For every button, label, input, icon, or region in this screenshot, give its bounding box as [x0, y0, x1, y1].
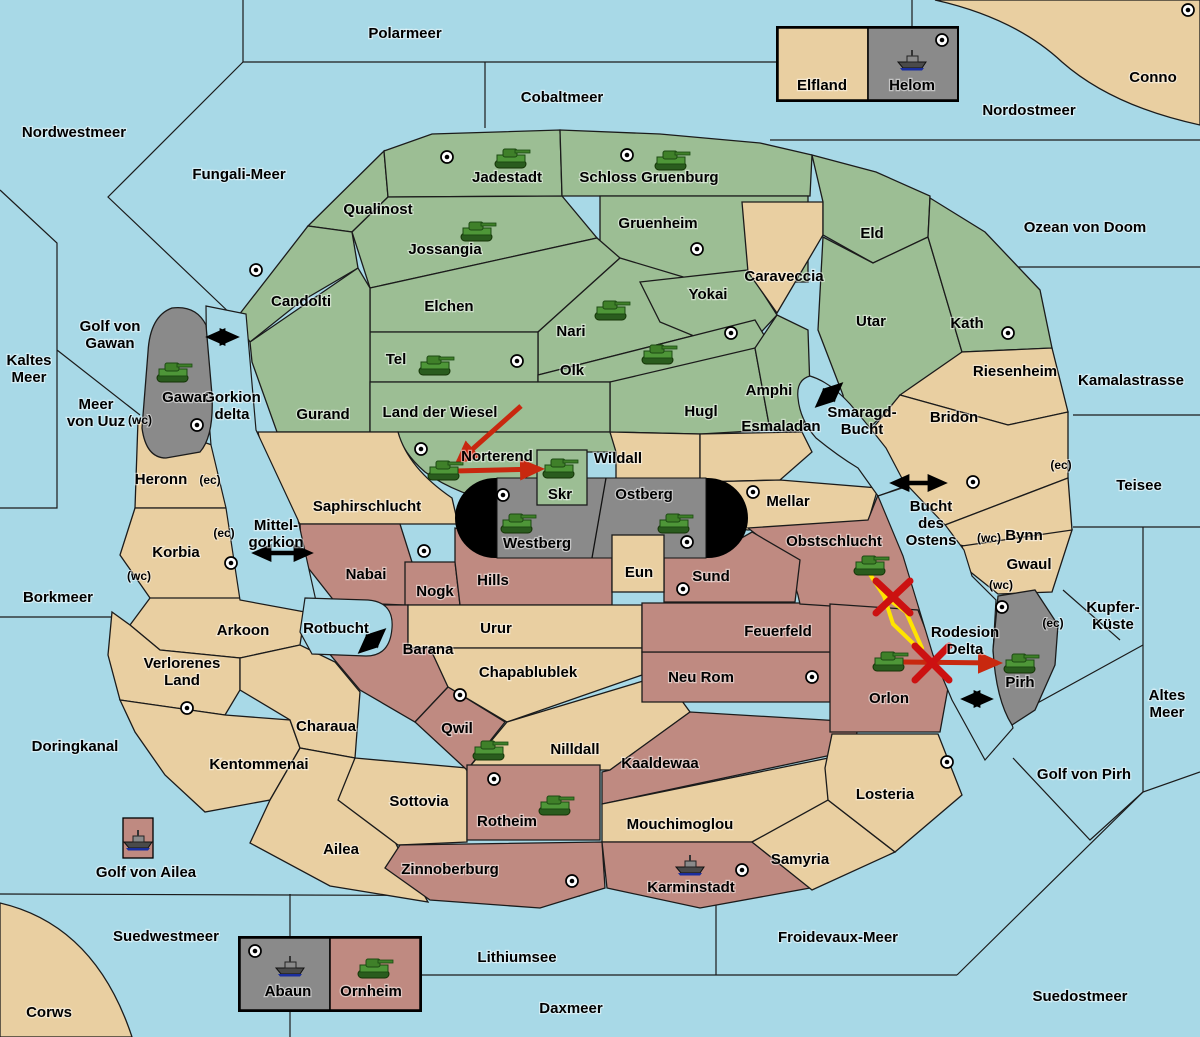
territory-label-karminstadt[interactable]: Karminstadt — [647, 879, 735, 896]
sea-label-nordostmeer[interactable]: Nordostmeer — [982, 102, 1076, 119]
territory-label-schloss-gruenburg[interactable]: Schloss Gruenburg — [579, 169, 718, 186]
territory-label-kentommenai[interactable]: Kentommenai — [209, 756, 308, 773]
city-dot-icon — [511, 355, 523, 367]
coast-marker-wc: (wc) — [127, 569, 151, 583]
city-dot-icon — [454, 689, 466, 701]
sea-label-froidevaux-meer[interactable]: Froidevaux-Meer — [778, 929, 898, 946]
territory-label-pirh[interactable]: Pirh — [1005, 674, 1034, 691]
territory-label-land-der-wiesel[interactable]: Land der Wiesel — [383, 404, 498, 421]
territory-label-barana[interactable]: Barana — [403, 641, 455, 658]
territory-label-elchen[interactable]: Elchen — [424, 298, 473, 315]
territory-label-ornheim[interactable]: Ornheim — [340, 983, 402, 1000]
sea-label-doringkanal[interactable]: Doringkanal — [32, 738, 119, 755]
attack-arrow-pirh — [903, 662, 998, 663]
territory-label-caraveccia[interactable]: Caraveccia — [744, 268, 824, 285]
territory-label-sottovia[interactable]: Sottovia — [389, 793, 449, 810]
territory-label-sund[interactable]: Sund — [692, 568, 730, 585]
territory-label-riesenheim[interactable]: Riesenheim — [973, 363, 1057, 380]
city-dot-icon — [441, 151, 453, 163]
territory-label-gawar[interactable]: Gawar — [162, 389, 208, 406]
sea-label-polarmeer[interactable]: Polarmeer — [368, 25, 442, 42]
territory-label-westberg[interactable]: Westberg — [503, 535, 571, 552]
territory-label-eld[interactable]: Eld — [860, 225, 883, 242]
coast-marker-wc: (wc) — [977, 531, 1001, 545]
city-dot-icon — [747, 486, 759, 498]
sea-label-golf-von-pirh[interactable]: Golf von Pirh — [1037, 766, 1131, 783]
sea-label-golf-von-ailea[interactable]: Golf von Ailea — [96, 864, 197, 881]
territory-label-nabai[interactable]: Nabai — [346, 566, 387, 583]
city-dot-icon — [621, 149, 633, 161]
territory-label-nogk[interactable]: Nogk — [416, 583, 454, 600]
territory-label-olk[interactable]: Olk — [560, 362, 585, 379]
territory-label-conno[interactable]: Conno — [1129, 69, 1176, 86]
coast-marker-ec: (ec) — [199, 473, 220, 487]
city-dot-icon — [941, 756, 953, 768]
sea-label-daxmeer[interactable]: Daxmeer — [539, 1000, 603, 1017]
territory-label-rotheim[interactable]: Rotheim — [477, 813, 537, 830]
sea-label-mittel-gorkion[interactable]: Mittel-gorkion — [249, 517, 304, 551]
territory-label-gruenheim[interactable]: Gruenheim — [618, 215, 697, 232]
sea-label-suedostmeer[interactable]: Suedostmeer — [1032, 988, 1127, 1005]
coast-marker-ec: (ec) — [213, 526, 234, 540]
coast-marker-wc: (wc) — [989, 578, 1013, 592]
city-dot-icon — [677, 583, 689, 595]
city-dot-icon — [418, 545, 430, 557]
territory-label-tel[interactable]: Tel — [386, 351, 407, 368]
territory-label-mellar[interactable]: Mellar — [766, 493, 810, 510]
territory-label-qualinost[interactable]: Qualinost — [343, 201, 412, 218]
territory-label-samyria[interactable]: Samyria — [771, 851, 830, 868]
territory-label-neu-rom[interactable]: Neu Rom — [668, 669, 734, 686]
city-dot-icon — [736, 864, 748, 876]
city-dot-icon — [725, 327, 737, 339]
territory-label-kath[interactable]: Kath — [950, 315, 983, 332]
territory-label-hugl[interactable]: Hugl — [684, 403, 717, 420]
territory-label-wildall[interactable]: Wildall — [594, 450, 642, 467]
coast-marker-wc: (wc) — [128, 413, 152, 427]
sea-label-altes-meer[interactable]: AltesMeer — [1149, 687, 1186, 721]
territory-label-mouchimoglou[interactable]: Mouchimoglou — [627, 816, 734, 833]
territory-label-nari[interactable]: Nari — [556, 323, 585, 340]
city-dot-icon — [497, 489, 509, 501]
territory-label-zinnoberburg[interactable]: Zinnoberburg — [401, 861, 499, 878]
sea-label-borkmeer[interactable]: Borkmeer — [23, 589, 93, 606]
territory-label-korbia[interactable]: Korbia — [152, 544, 200, 561]
territory-label-utar[interactable]: Utar — [856, 313, 886, 330]
territory-label-heronn[interactable]: Heronn — [135, 471, 188, 488]
territory-label-bynn[interactable]: Bynn — [1005, 527, 1043, 544]
city-dot-icon — [181, 702, 193, 714]
city-dot-icon — [681, 536, 693, 548]
territory-label-elfland[interactable]: Elfland — [797, 77, 847, 94]
territory-label-saphirschlucht[interactable]: Saphirschlucht — [313, 498, 421, 515]
coast-marker-ec: (ec) — [1050, 458, 1071, 472]
territory-label-obstschlucht[interactable]: Obstschlucht — [786, 533, 882, 550]
city-dot-icon — [566, 875, 578, 887]
territory-label-ailea[interactable]: Ailea — [323, 841, 360, 858]
territory-label-gwaul[interactable]: Gwaul — [1006, 556, 1051, 573]
territory-label-orlon[interactable]: Orlon — [869, 690, 909, 707]
territory-label-amphi[interactable]: Amphi — [746, 382, 793, 399]
city-dot-icon — [1182, 4, 1194, 16]
territory-label-kaaldewaa[interactable]: Kaaldewaa — [621, 755, 699, 772]
territory-label-helom[interactable]: Helom — [889, 77, 935, 94]
territory-label-jadestadt[interactable]: Jadestadt — [472, 169, 542, 186]
sea-label-kamalastrasse[interactable]: Kamalastrasse — [1078, 372, 1184, 389]
sea-label-cobaltmeer[interactable]: Cobaltmeer — [521, 89, 604, 106]
territory-label-skr[interactable]: Skr — [548, 486, 572, 503]
territory-label-jossangia[interactable]: Jossangia — [408, 241, 482, 258]
city-dot-icon — [691, 243, 703, 255]
territory-label-esmaladan[interactable]: Esmaladan — [741, 418, 820, 435]
city-dot-icon — [996, 601, 1008, 613]
territory-label-losteria[interactable]: Losteria — [856, 786, 915, 803]
city-dot-icon — [1002, 327, 1014, 339]
territory-label-yokai[interactable]: Yokai — [689, 286, 728, 303]
territory-label-arkoon[interactable]: Arkoon — [217, 622, 270, 639]
sea-label-nordwestmeer[interactable]: Nordwestmeer — [22, 124, 126, 141]
sea-label-teisee[interactable]: Teisee — [1116, 477, 1162, 494]
territory-region-gawar[interactable] — [142, 308, 212, 458]
city-dot-icon — [936, 34, 948, 46]
game-map: Polarmeer Cobaltmeer Nordostmeer Nordwes… — [0, 0, 1200, 1037]
territory-label-corws[interactable]: Corws — [26, 1004, 72, 1021]
territory-label-urur[interactable]: Urur — [480, 620, 512, 637]
sea-label-kaltes-meer[interactable]: KaltesMeer — [6, 352, 51, 386]
sea-label-rotbucht[interactable]: Rotbucht — [303, 620, 369, 637]
city-dot-icon — [249, 945, 261, 957]
territory-label-qwil[interactable]: Qwil — [441, 720, 473, 737]
territory-label-bridon[interactable]: Bridon — [930, 409, 978, 426]
attack-arrow-skr — [455, 469, 540, 471]
territory-label-chapablublek[interactable]: Chapablublek — [479, 664, 578, 681]
sea-label-fungali-meer[interactable]: Fungali-Meer — [192, 166, 286, 183]
sea-label-ozean-von-doom[interactable]: Ozean von Doom — [1024, 219, 1147, 236]
city-dot-icon — [967, 476, 979, 488]
coast-marker-ec: (ec) — [1042, 616, 1063, 630]
city-dot-icon — [415, 443, 427, 455]
territory-label-abaun[interactable]: Abaun — [265, 983, 312, 1000]
territory-label-ostberg[interactable]: Ostberg — [615, 486, 673, 503]
territory-label-nilldall[interactable]: Nilldall — [550, 741, 599, 758]
territory-label-feuerfeld[interactable]: Feuerfeld — [744, 623, 812, 640]
city-dot-icon — [191, 419, 203, 431]
territory-label-hills[interactable]: Hills — [477, 572, 509, 589]
territory-label-charaua[interactable]: Charaua — [296, 718, 357, 735]
territory-label-candolti[interactable]: Candolti — [271, 293, 331, 310]
city-dot-icon — [225, 557, 237, 569]
territory-label-gurand[interactable]: Gurand — [296, 406, 349, 423]
city-dot-icon — [488, 773, 500, 785]
sea-label-suedwestmeer[interactable]: Suedwestmeer — [113, 928, 219, 945]
city-dot-icon — [806, 671, 818, 683]
sea-label-golf-von-gawan[interactable]: Golf vonGawan — [80, 318, 141, 352]
city-dot-icon — [250, 264, 262, 276]
territory-label-eun[interactable]: Eun — [625, 564, 653, 581]
sea-label-kupfer-kueste[interactable]: Kupfer-Küste — [1086, 599, 1139, 633]
territory-label-norterend[interactable]: Norterend — [461, 448, 533, 465]
sea-label-lithiumsee[interactable]: Lithiumsee — [477, 949, 556, 966]
